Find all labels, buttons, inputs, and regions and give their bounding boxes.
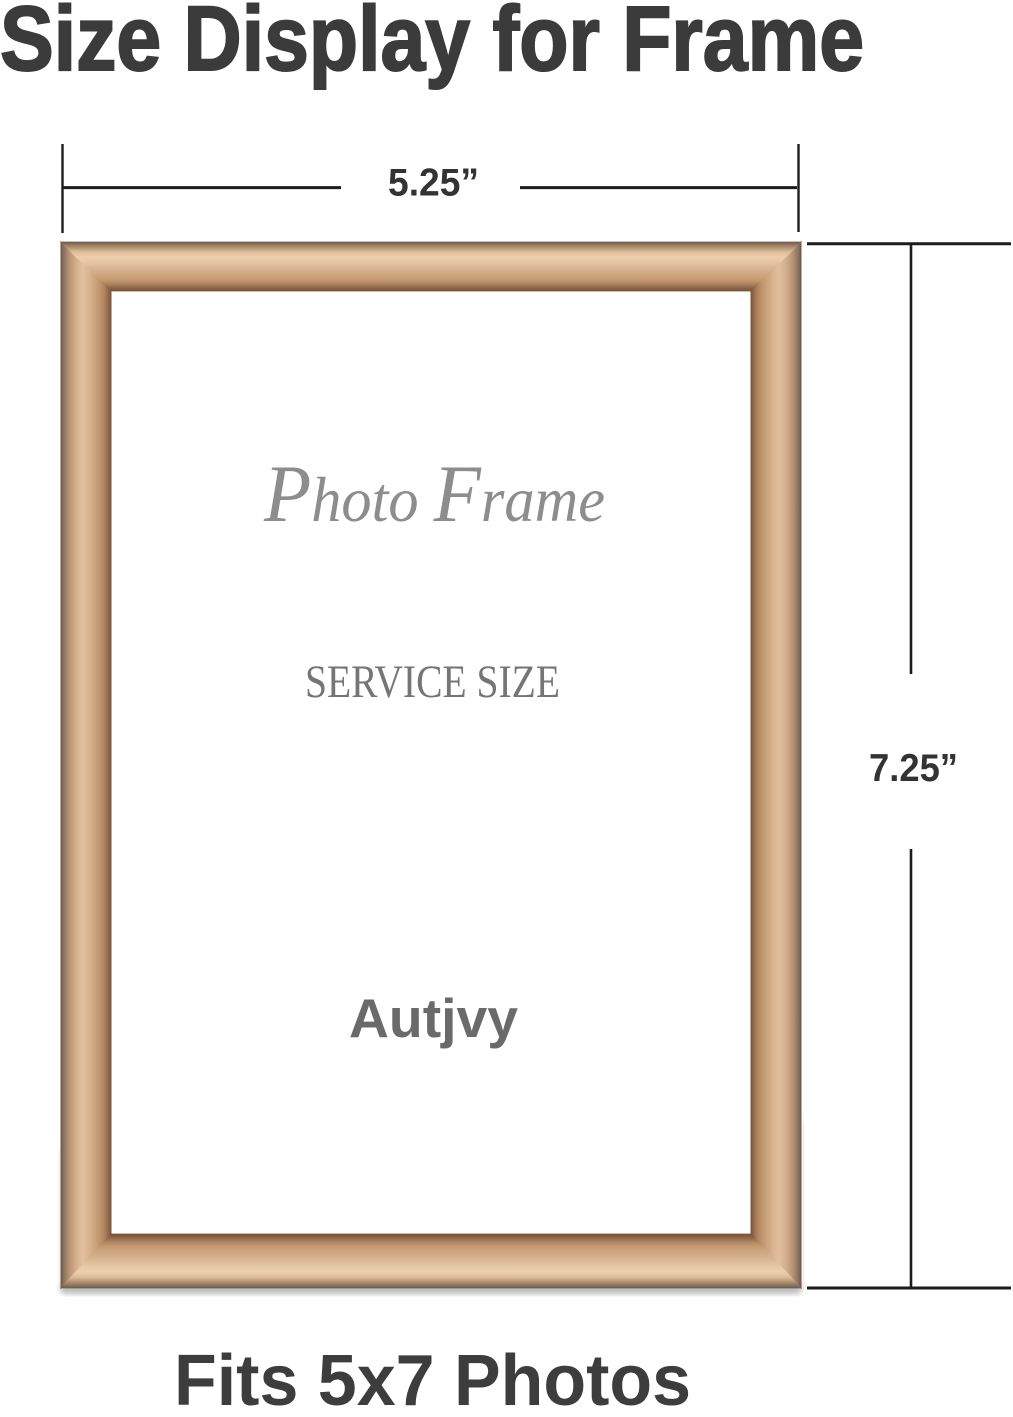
svg-text:Photo Frame: Photo Frame bbox=[263, 448, 605, 539]
svg-text:7.25”: 7.25” bbox=[869, 747, 958, 790]
svg-text:Autjvy: Autjvy bbox=[349, 987, 518, 1049]
svg-text:SERVICE SIZE: SERVICE SIZE bbox=[305, 656, 560, 708]
svg-text:5.25”: 5.25” bbox=[388, 162, 479, 205]
svg-text:Size Display for Frame: Size Display for Frame bbox=[0, 0, 864, 90]
svg-text:Fits 5x7 Photos: Fits 5x7 Photos bbox=[174, 1341, 691, 1417]
